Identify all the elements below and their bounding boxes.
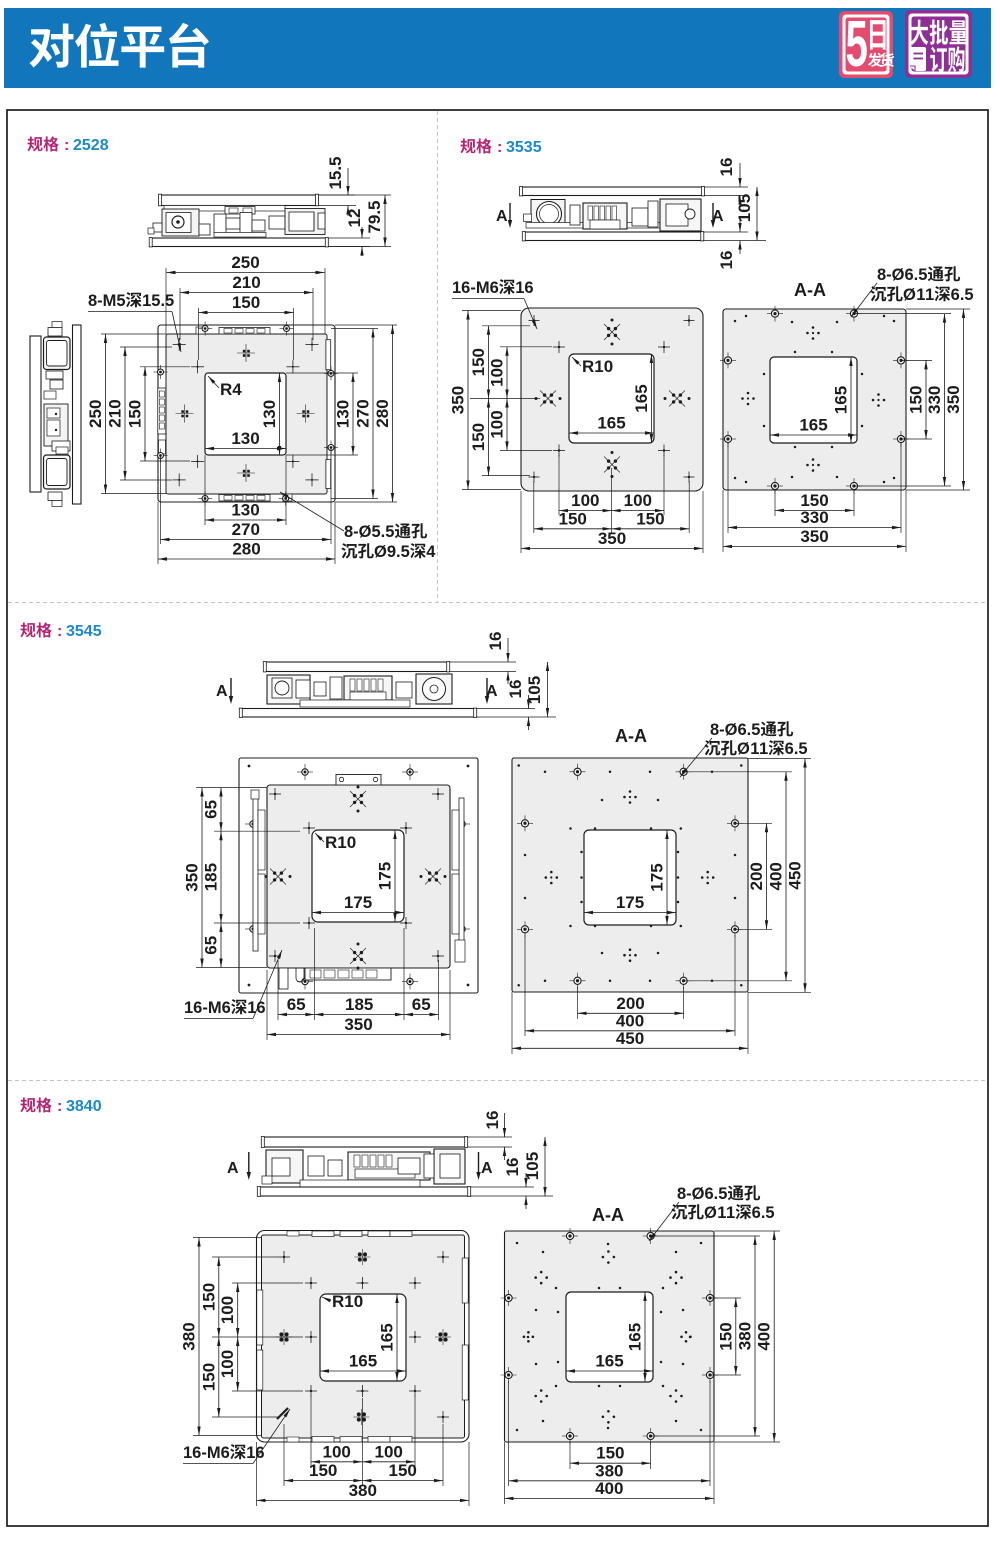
- svg-text:380: 380: [180, 1322, 199, 1350]
- svg-text:100: 100: [624, 491, 652, 510]
- svg-text:150: 150: [636, 509, 664, 528]
- svg-text:165: 165: [597, 414, 625, 433]
- svg-text:150: 150: [389, 1461, 417, 1480]
- svg-text:16-M6: 16-M6: [452, 279, 499, 297]
- svg-text:270: 270: [232, 520, 260, 539]
- svg-text:100: 100: [571, 491, 599, 510]
- svg-text:R10: R10: [332, 1292, 363, 1311]
- svg-text:8-Ø5.5: 8-Ø5.5: [344, 523, 394, 541]
- svg-text:Ø11: Ø11: [704, 1204, 735, 1222]
- svg-text:250: 250: [231, 253, 259, 272]
- svg-text::: :: [57, 1098, 62, 1115]
- svg-text:100: 100: [375, 1442, 403, 1461]
- svg-text:16-M6: 16-M6: [183, 1444, 230, 1462]
- svg-text:150: 150: [232, 293, 260, 312]
- svg-text:380: 380: [595, 1461, 623, 1480]
- svg-text:185: 185: [202, 863, 221, 891]
- svg-text:150: 150: [469, 423, 488, 451]
- svg-text:130: 130: [231, 501, 259, 520]
- svg-text:280: 280: [373, 399, 392, 427]
- svg-text:Ø9.5: Ø9.5: [374, 543, 410, 561]
- svg-text:330: 330: [925, 386, 944, 414]
- svg-text:6.5: 6.5: [752, 1204, 775, 1222]
- svg-text:150: 150: [907, 386, 926, 414]
- svg-text:3535: 3535: [506, 139, 542, 156]
- svg-text:15.5: 15.5: [326, 156, 345, 189]
- svg-text:165: 165: [632, 384, 651, 412]
- svg-text:100: 100: [218, 1296, 237, 1324]
- svg-text:130: 130: [231, 429, 259, 448]
- svg-text:16: 16: [717, 158, 736, 177]
- svg-text:210: 210: [232, 273, 260, 292]
- svg-text:100: 100: [323, 1442, 351, 1461]
- svg-text:16: 16: [503, 1158, 522, 1177]
- svg-text:450: 450: [786, 861, 805, 889]
- svg-text:280: 280: [232, 540, 260, 559]
- svg-text:100: 100: [218, 1350, 237, 1378]
- svg-text:350: 350: [944, 385, 963, 413]
- svg-text:165: 165: [626, 1323, 645, 1351]
- svg-text:A-A: A-A: [592, 1205, 624, 1225]
- svg-text:200: 200: [616, 994, 644, 1013]
- svg-text:16: 16: [717, 251, 736, 270]
- svg-text:400: 400: [755, 1322, 774, 1350]
- svg-text::: :: [497, 139, 502, 156]
- svg-text:79.5: 79.5: [365, 200, 384, 233]
- svg-text:65: 65: [412, 995, 431, 1014]
- svg-text:16: 16: [247, 999, 265, 1017]
- svg-text:165: 165: [378, 1323, 397, 1351]
- svg-text:400: 400: [767, 862, 786, 890]
- svg-text:Ø11: Ø11: [737, 740, 768, 758]
- svg-text:130: 130: [260, 400, 279, 428]
- svg-text:105: 105: [523, 1152, 542, 1180]
- svg-text:8-M5: 8-M5: [88, 292, 126, 310]
- svg-text:8-Ø6.5: 8-Ø6.5: [677, 1185, 727, 1203]
- svg-text:150: 150: [309, 1461, 337, 1480]
- svg-text:350: 350: [344, 1015, 372, 1034]
- svg-text:Ø11: Ø11: [903, 286, 934, 304]
- svg-text:175: 175: [344, 893, 372, 912]
- svg-text:16: 16: [506, 680, 525, 699]
- svg-text:100: 100: [488, 410, 507, 438]
- svg-text:R10: R10: [325, 833, 356, 852]
- svg-text:175: 175: [648, 863, 667, 891]
- svg-text:8-Ø6.5: 8-Ø6.5: [877, 266, 927, 284]
- svg-text:175: 175: [376, 862, 395, 890]
- svg-text:15.5: 15.5: [142, 292, 174, 310]
- svg-text:3840: 3840: [66, 1098, 102, 1115]
- svg-text:A-A: A-A: [794, 280, 826, 300]
- svg-text:150: 150: [559, 509, 587, 528]
- svg-text:R10: R10: [582, 357, 613, 376]
- svg-text::: :: [57, 623, 62, 640]
- svg-text:3545: 3545: [66, 623, 102, 640]
- svg-text:400: 400: [595, 1479, 623, 1498]
- svg-text:A: A: [496, 208, 508, 225]
- svg-text:150: 150: [716, 1322, 735, 1350]
- svg-text:165: 165: [799, 416, 827, 435]
- svg-text:380: 380: [349, 1481, 377, 1500]
- svg-text:150: 150: [199, 1363, 218, 1391]
- svg-text:165: 165: [595, 1352, 623, 1371]
- svg-text:2528: 2528: [73, 137, 109, 154]
- svg-text:175: 175: [616, 893, 644, 912]
- svg-text:350: 350: [598, 529, 626, 548]
- svg-text:16: 16: [483, 1111, 502, 1130]
- svg-text:450: 450: [616, 1029, 644, 1048]
- svg-text:185: 185: [345, 995, 373, 1014]
- svg-text:350: 350: [183, 863, 202, 891]
- svg-text:400: 400: [616, 1011, 644, 1030]
- svg-text:A: A: [481, 1160, 493, 1177]
- svg-text:130: 130: [334, 400, 353, 428]
- svg-text:R4: R4: [220, 380, 242, 399]
- svg-text:200: 200: [747, 862, 766, 890]
- svg-text:270: 270: [354, 399, 373, 427]
- svg-text:4: 4: [426, 543, 436, 561]
- svg-text:16-M6: 16-M6: [184, 999, 231, 1017]
- svg-text:A-A: A-A: [615, 726, 647, 746]
- svg-text:350: 350: [800, 527, 828, 546]
- svg-text:150: 150: [126, 400, 145, 428]
- svg-text:A: A: [227, 1160, 239, 1177]
- svg-text:105: 105: [525, 676, 544, 704]
- svg-text:16: 16: [515, 279, 533, 297]
- svg-text:380: 380: [736, 1322, 755, 1350]
- svg-text::: :: [64, 137, 69, 154]
- svg-text:6.5: 6.5: [951, 286, 974, 304]
- svg-text:8-Ø6.5: 8-Ø6.5: [710, 721, 760, 739]
- svg-text:330: 330: [800, 508, 828, 527]
- svg-text:150: 150: [596, 1444, 624, 1463]
- svg-text:65: 65: [287, 995, 306, 1014]
- svg-text:210: 210: [106, 399, 125, 427]
- svg-text:65: 65: [202, 800, 221, 819]
- svg-text:16: 16: [486, 632, 505, 651]
- svg-text:5: 5: [846, 8, 868, 80]
- svg-text:165: 165: [349, 1352, 377, 1371]
- svg-text:165: 165: [832, 386, 851, 414]
- svg-text:6.5: 6.5: [785, 740, 808, 758]
- svg-text:100: 100: [488, 358, 507, 386]
- svg-text:12: 12: [345, 209, 364, 228]
- svg-text:A: A: [216, 683, 228, 700]
- svg-text:250: 250: [86, 400, 105, 428]
- svg-text:150: 150: [199, 1283, 218, 1311]
- svg-text:350: 350: [449, 386, 468, 414]
- svg-text:65: 65: [202, 936, 221, 955]
- svg-text:150: 150: [469, 348, 488, 376]
- svg-text:105: 105: [735, 194, 754, 222]
